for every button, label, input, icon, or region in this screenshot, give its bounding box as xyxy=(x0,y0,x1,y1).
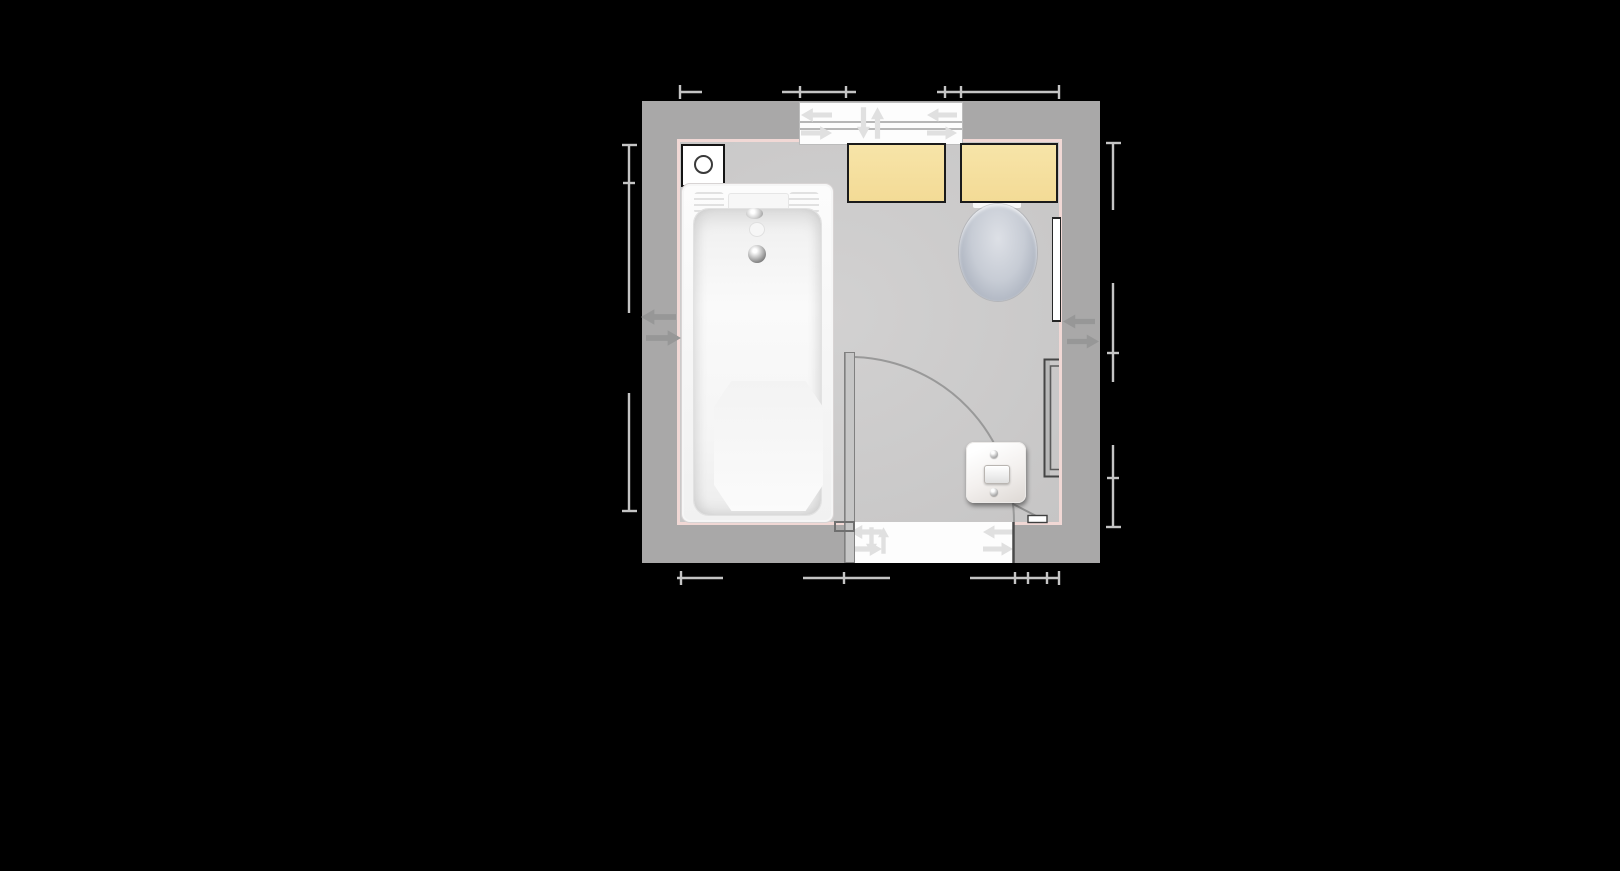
arrow-up-icon xyxy=(878,526,889,555)
arrow-left-icon xyxy=(1063,314,1095,329)
arrow-up-icon xyxy=(871,107,884,139)
dimension-guides-top xyxy=(680,85,1059,99)
dimension-guides-left xyxy=(622,145,637,511)
dimension-guides-bottom xyxy=(677,571,1059,585)
cabinet-2[interactable] xyxy=(960,143,1058,203)
arrow-right-icon xyxy=(1067,334,1099,349)
tub-faucet xyxy=(746,208,763,219)
fan-circle-icon xyxy=(694,155,713,174)
arrow-left-icon xyxy=(801,108,832,122)
tub-overflow xyxy=(749,222,765,237)
arrow-down-icon xyxy=(866,526,877,555)
arrow-right-icon xyxy=(983,542,1013,556)
arrow-left-icon xyxy=(927,108,957,122)
door-opening[interactable] xyxy=(845,522,1013,563)
arrow-right-icon xyxy=(801,126,832,140)
switch-screw-bottom xyxy=(990,488,998,496)
arrow-right-icon xyxy=(927,126,957,140)
light-switch[interactable] xyxy=(966,442,1026,503)
arrow-left-icon xyxy=(641,309,676,325)
extractor-fan[interactable] xyxy=(681,144,725,187)
arrow-right-icon xyxy=(646,330,681,346)
switch-rocker xyxy=(984,465,1010,484)
wall-flip-handle-left[interactable] xyxy=(641,309,681,351)
dimension-guides-right xyxy=(1106,143,1121,527)
wall-flip-handle-right[interactable] xyxy=(1063,314,1099,352)
bathtub[interactable] xyxy=(681,183,834,523)
floorplan-canvas xyxy=(0,0,1620,871)
arrow-left-icon xyxy=(983,525,1013,539)
tub-drain xyxy=(748,245,766,263)
arrow-down-icon xyxy=(857,107,870,139)
sliding-window[interactable] xyxy=(799,102,963,145)
tub-floor xyxy=(714,381,823,511)
cabinet-1[interactable] xyxy=(847,143,946,203)
wall-mirror[interactable] xyxy=(1052,217,1061,322)
switch-screw-top xyxy=(990,450,998,458)
door-hinge-plate xyxy=(834,521,855,532)
toilet[interactable] xyxy=(959,204,1037,301)
